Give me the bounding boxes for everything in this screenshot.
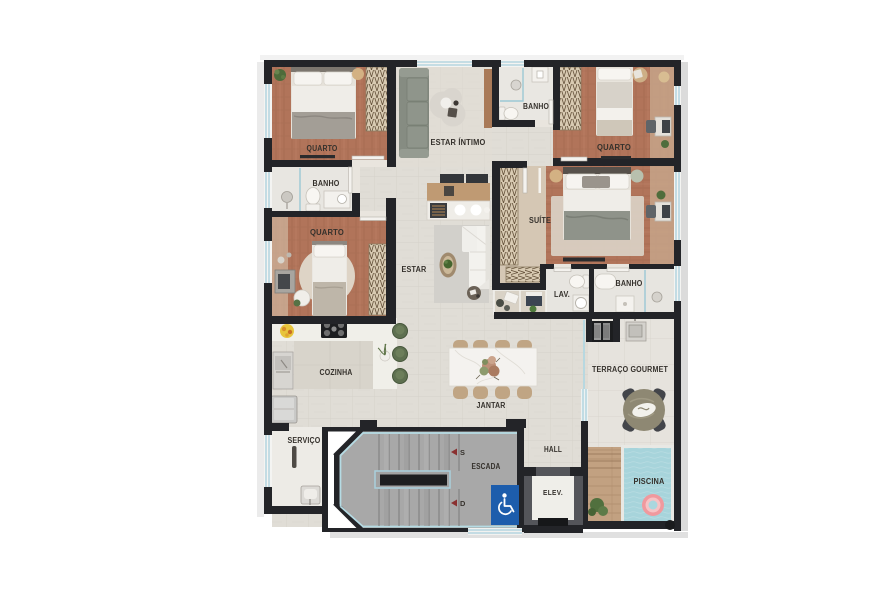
- svg-text:ELEV.: ELEV.: [543, 488, 563, 497]
- svg-text:BANHO: BANHO: [313, 179, 340, 188]
- svg-text:COZINHA: COZINHA: [320, 368, 353, 377]
- svg-text:ESTAR ÍNTIMO: ESTAR ÍNTIMO: [431, 138, 486, 147]
- svg-text:HALL: HALL: [544, 445, 562, 454]
- svg-text:BANHO: BANHO: [616, 279, 643, 288]
- svg-text:D: D: [460, 499, 466, 508]
- svg-text:S: S: [460, 448, 465, 457]
- svg-text:SUÍTE: SUÍTE: [529, 216, 551, 225]
- svg-text:JANTAR: JANTAR: [477, 401, 506, 410]
- svg-text:ESTAR: ESTAR: [402, 265, 427, 274]
- svg-text:BANHO: BANHO: [523, 102, 549, 111]
- svg-text:ESCADA: ESCADA: [472, 462, 501, 471]
- svg-text:QUARTO: QUARTO: [307, 144, 338, 153]
- svg-text:QUARTO: QUARTO: [597, 143, 631, 152]
- svg-text:PISCINA: PISCINA: [634, 477, 665, 486]
- svg-text:LAV.: LAV.: [554, 290, 570, 299]
- svg-text:TERRAÇO GOURMET: TERRAÇO GOURMET: [592, 365, 668, 374]
- svg-text:SERVIÇO: SERVIÇO: [288, 436, 321, 445]
- svg-text:QUARTO: QUARTO: [310, 228, 344, 237]
